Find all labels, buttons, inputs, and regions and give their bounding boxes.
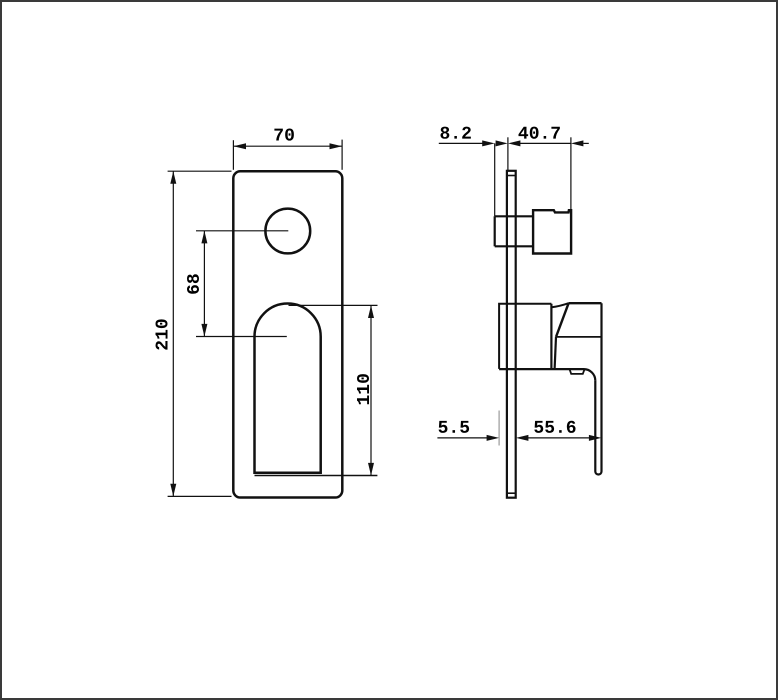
svg-text:68: 68 [185, 273, 205, 295]
svg-text:55.6: 55.6 [533, 419, 576, 439]
svg-text:110: 110 [355, 373, 375, 405]
svg-text:70: 70 [273, 126, 295, 146]
svg-text:210: 210 [153, 318, 173, 350]
svg-text:8.2: 8.2 [439, 125, 471, 145]
svg-text:5.5: 5.5 [438, 419, 470, 439]
svg-text:40.7: 40.7 [518, 125, 561, 145]
